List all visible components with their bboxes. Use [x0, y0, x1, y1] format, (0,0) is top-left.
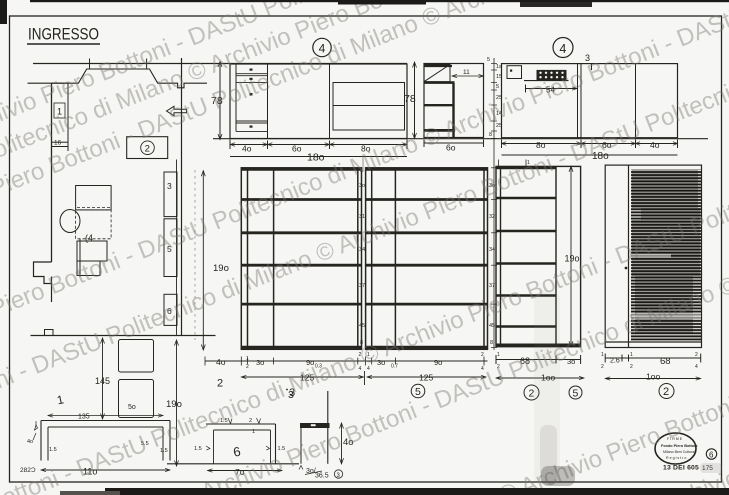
svg-text:145: 145 [95, 376, 110, 386]
svg-text:1: 1 [630, 352, 633, 358]
svg-text:Milano Beni Culturali: Milano Beni Culturali [663, 450, 696, 454]
svg-text:4: 4 [695, 364, 698, 370]
svg-text:2: 2 [529, 388, 535, 400]
svg-text:125: 125 [419, 373, 433, 383]
svg-text:3: 3 [167, 181, 172, 191]
svg-text:2.6: 2.6 [610, 358, 620, 365]
svg-text:11: 11 [463, 69, 470, 76]
svg-text:3o: 3o [359, 183, 365, 189]
svg-text:2: 2 [663, 386, 669, 398]
svg-text:5o: 5o [128, 404, 136, 411]
svg-text:37: 37 [489, 283, 495, 289]
svg-text:13 DEI 605: 13 DEI 605 [663, 465, 699, 472]
svg-text:1.5: 1.5 [49, 447, 57, 453]
svg-text:6: 6 [709, 451, 714, 460]
svg-text:INGRESSO: INGRESSO [28, 26, 99, 44]
svg-text:5: 5 [573, 388, 579, 400]
svg-text:2: 2 [695, 352, 698, 358]
svg-text:2: 2 [481, 352, 484, 358]
svg-text:36.5: 36.5 [315, 473, 329, 480]
svg-text:R e g i s t r o: R e g i s t r o [666, 456, 686, 460]
svg-text:2: 2 [630, 364, 633, 370]
svg-text:5: 5 [496, 84, 499, 90]
svg-text:4o: 4o [650, 140, 660, 150]
svg-text:2: 2 [249, 418, 252, 424]
svg-text:9o: 9o [434, 358, 442, 367]
svg-text:5: 5 [487, 57, 490, 63]
svg-text:37: 37 [359, 283, 365, 289]
svg-text:2: 2 [246, 364, 249, 370]
svg-text:1: 1 [246, 356, 249, 362]
svg-text:0.7: 0.7 [391, 364, 398, 370]
svg-text:1.5: 1.5 [194, 446, 202, 452]
svg-text:4o: 4o [216, 357, 226, 367]
svg-text:4: 4 [559, 42, 566, 56]
svg-text:8: 8 [490, 340, 493, 346]
svg-text:78: 78 [404, 93, 416, 105]
svg-text:135: 135 [78, 414, 90, 421]
svg-text:45: 45 [489, 323, 495, 329]
svg-text:31: 31 [359, 214, 365, 220]
svg-text:19o: 19o [166, 399, 182, 410]
svg-text:34: 34 [489, 247, 495, 253]
svg-text:1: 1 [252, 429, 255, 435]
svg-text:8: 8 [489, 132, 492, 138]
svg-text:1: 1 [497, 352, 500, 358]
svg-text:2: 2 [217, 378, 223, 390]
svg-text:68: 68 [660, 356, 671, 367]
svg-text:4o: 4o [27, 439, 33, 445]
svg-text:2: 2 [145, 144, 150, 155]
svg-text:19o: 19o [213, 263, 229, 274]
svg-text:4o: 4o [242, 144, 252, 154]
svg-text:2: 2 [601, 364, 604, 370]
svg-text:1oo: 1oo [646, 372, 660, 382]
svg-text:1: 1 [601, 352, 604, 358]
svg-text:3o: 3o [256, 358, 264, 367]
svg-text:32: 32 [489, 214, 495, 220]
svg-text:18o: 18o [307, 152, 325, 164]
svg-text:8o: 8o [536, 140, 546, 150]
svg-text:6o: 6o [292, 144, 302, 154]
svg-text:45: 45 [359, 323, 365, 329]
